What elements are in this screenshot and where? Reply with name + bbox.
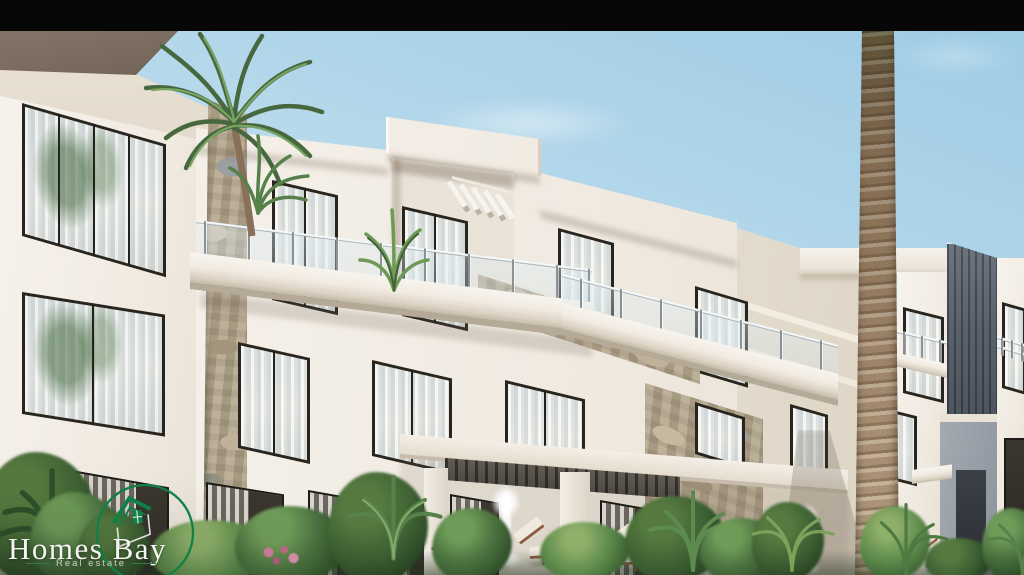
window-mullion [93,123,95,257]
render-canvas: Homes Bay Real estate [0,0,1024,575]
logo-tagline: Real estate [56,558,126,569]
window [238,342,310,464]
window-mullion [128,133,130,267]
railing-post [939,340,941,362]
railing-post [1011,340,1013,359]
palm-plant [975,494,1024,575]
window [22,292,165,437]
cloud [890,42,1020,72]
railing-post [921,336,923,358]
window-glass [698,406,742,465]
railing-post [1021,343,1023,362]
window-mullion [58,113,60,247]
tagline-rule [132,563,156,564]
railing-post [903,331,905,353]
shrub [540,522,630,575]
balcony-plant [356,194,430,292]
window-mullion [273,350,275,456]
window-mullion [92,303,94,425]
tagline-rule [26,563,50,564]
dark-slat-feature-wall [947,242,997,436]
logo-tagline-row: Real estate [26,558,156,569]
palm-plant [742,486,842,574]
shrub [432,508,512,575]
parapet-edge-highlight [386,117,389,153]
palm-plant [228,118,323,218]
railing-post [1001,337,1003,356]
letterbox-bar [0,0,1024,31]
right-slab-edge [940,414,997,422]
parapet-edge-shadow [538,139,541,176]
